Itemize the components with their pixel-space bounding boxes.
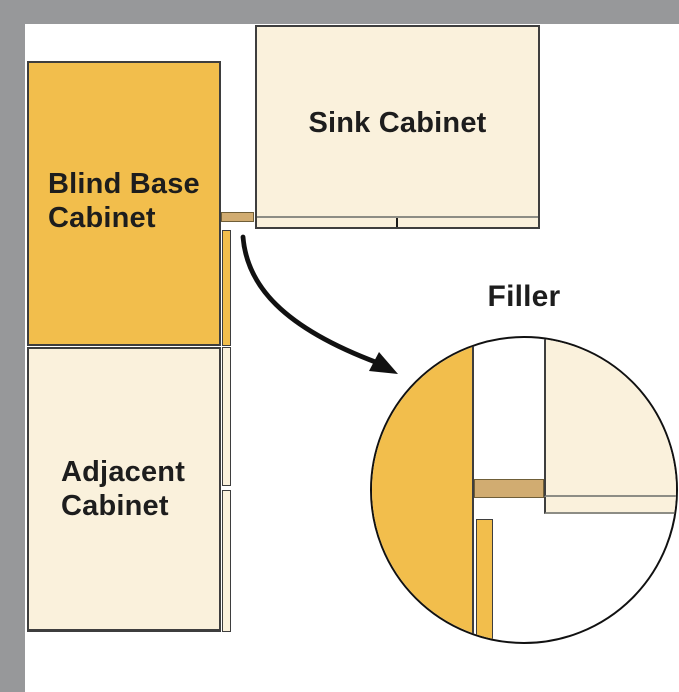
blind-base-cabinet-label: Blind Base Cabinet	[48, 167, 218, 235]
blind-base-cabinet-label-line2: Cabinet	[48, 201, 218, 235]
detail-filler-strip	[474, 479, 544, 498]
blind-base-cabinet-label-line1: Blind Base	[48, 167, 218, 201]
wall-left	[0, 24, 25, 692]
adjacent-cabinet-label: Adjacent Cabinet	[61, 455, 231, 523]
filler-detail-circle	[370, 336, 678, 644]
sink-cabinet-face-rail	[257, 216, 538, 227]
wall-top	[0, 0, 679, 24]
filler-detail-label: Filler	[424, 280, 624, 314]
adjacent-cabinet-label-line1: Adjacent	[61, 455, 231, 489]
sink-cabinet-door-divider	[396, 218, 398, 227]
detail-blind-door-front	[476, 519, 493, 644]
floor-plan-diagram: Blind Base Cabinet Sink Cabinet Adjacent…	[0, 0, 679, 692]
sink-cabinet-label: Sink Cabinet	[257, 106, 538, 140]
blind-base-cabinet-door-front	[222, 230, 231, 346]
detail-sink-cabinet-side	[544, 336, 678, 497]
filler-strip	[221, 212, 254, 222]
detail-blind-cabinet-side	[370, 336, 474, 644]
adjacent-cabinet-label-line2: Cabinet	[61, 489, 231, 523]
detail-sink-cabinet-rail	[544, 497, 678, 514]
